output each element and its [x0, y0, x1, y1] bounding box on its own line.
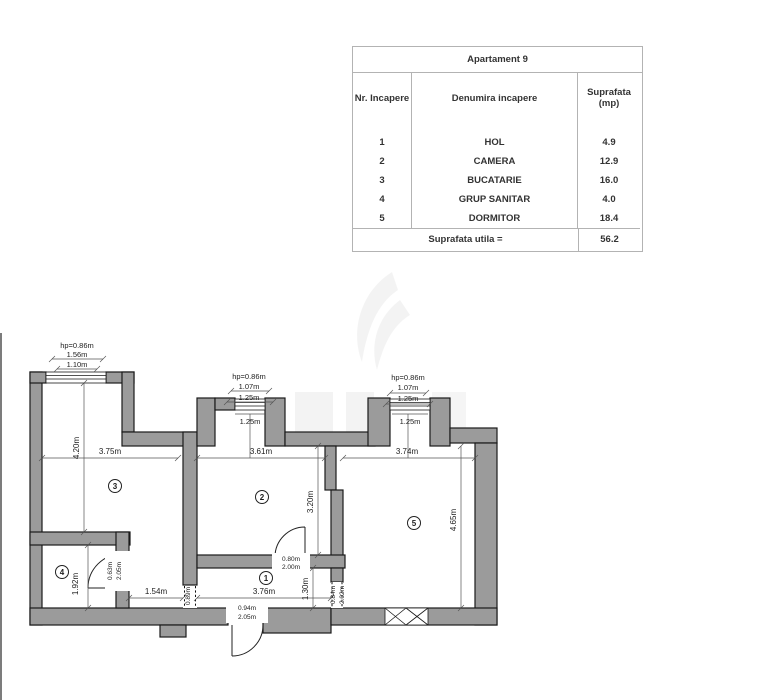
win5-width-inner: 1.25m — [398, 394, 419, 403]
dim-hall-height: 1.30m — [301, 578, 310, 601]
scan-edge — [0, 333, 2, 700]
room-label-4: 4 — [56, 566, 69, 579]
win2-sill-width: 1.25m — [240, 417, 261, 426]
svg-text:0.94m: 0.94m — [238, 605, 256, 612]
dim-hall-width: 3.76m — [253, 587, 276, 596]
hatched-opening — [385, 608, 428, 625]
dim-room2-width: 3.61m — [250, 447, 273, 456]
dim-room5-height: 4.65m — [449, 509, 458, 532]
win3-width-inner: 1.10m — [67, 360, 88, 369]
dim-room3-height: 4.20m — [72, 437, 81, 460]
svg-text:2: 2 — [260, 493, 265, 502]
win3-width-outer: 1.56m — [67, 350, 88, 359]
dim-pass-width: 0.89m — [185, 587, 192, 605]
svg-text:3: 3 — [113, 482, 118, 491]
win5-hp-label: hp=0.86m — [391, 373, 425, 382]
svg-text:4: 4 — [60, 568, 65, 577]
dim-room2-height: 3.20m — [306, 491, 315, 514]
door-room2-label: 0.80m 2.00m — [272, 553, 310, 571]
svg-text:5: 5 — [412, 519, 417, 528]
dim-room3-width: 3.75m — [99, 447, 122, 456]
door-entrance — [232, 625, 263, 656]
floor-plan: hp=0.86m 1.56m 1.10m hp=0.86m 1.07m 1.25… — [0, 0, 779, 700]
win2-hp-label: hp=0.86m — [232, 372, 266, 381]
svg-text:0.63m: 0.63m — [107, 562, 114, 580]
svg-text:2.05m: 2.05m — [116, 562, 123, 580]
door-room2 — [275, 527, 305, 557]
win5-sill-width: 1.25m — [400, 417, 421, 426]
room-label-1: 1 — [260, 572, 273, 585]
door-bathroom-label: 0.63m 2.05m — [105, 551, 131, 591]
room-label-3: 3 — [109, 480, 122, 493]
svg-text:2.02m: 2.02m — [339, 586, 346, 604]
walls — [30, 372, 497, 637]
win3-hp-label: hp=0.86m — [60, 341, 94, 350]
svg-text:2.00m: 2.00m — [282, 564, 300, 571]
window-room3 — [46, 372, 106, 383]
door-entrance-label: 0.94m 2.05m — [226, 602, 268, 623]
room-label-5: 5 — [408, 517, 421, 530]
svg-text:1: 1 — [264, 574, 269, 583]
dim-room4-height: 1.92m — [71, 573, 80, 596]
svg-text:0.80m: 0.80m — [282, 556, 300, 563]
scanned-floor-plan-page: Apartament 9 Nr. Incapere Denumira incap… — [0, 0, 779, 700]
win2-width-outer: 1.07m — [239, 382, 260, 391]
dim-hall-segment: 1.54m — [145, 587, 168, 596]
win5-width-outer: 1.07m — [398, 383, 419, 392]
room-label-2: 2 — [256, 491, 269, 504]
win2-width-inner: 1.25m — [239, 393, 260, 402]
dim-room5-width: 3.74m — [396, 447, 419, 456]
svg-text:2.05m: 2.05m — [238, 614, 256, 621]
svg-text:0.84m: 0.84m — [330, 586, 337, 604]
